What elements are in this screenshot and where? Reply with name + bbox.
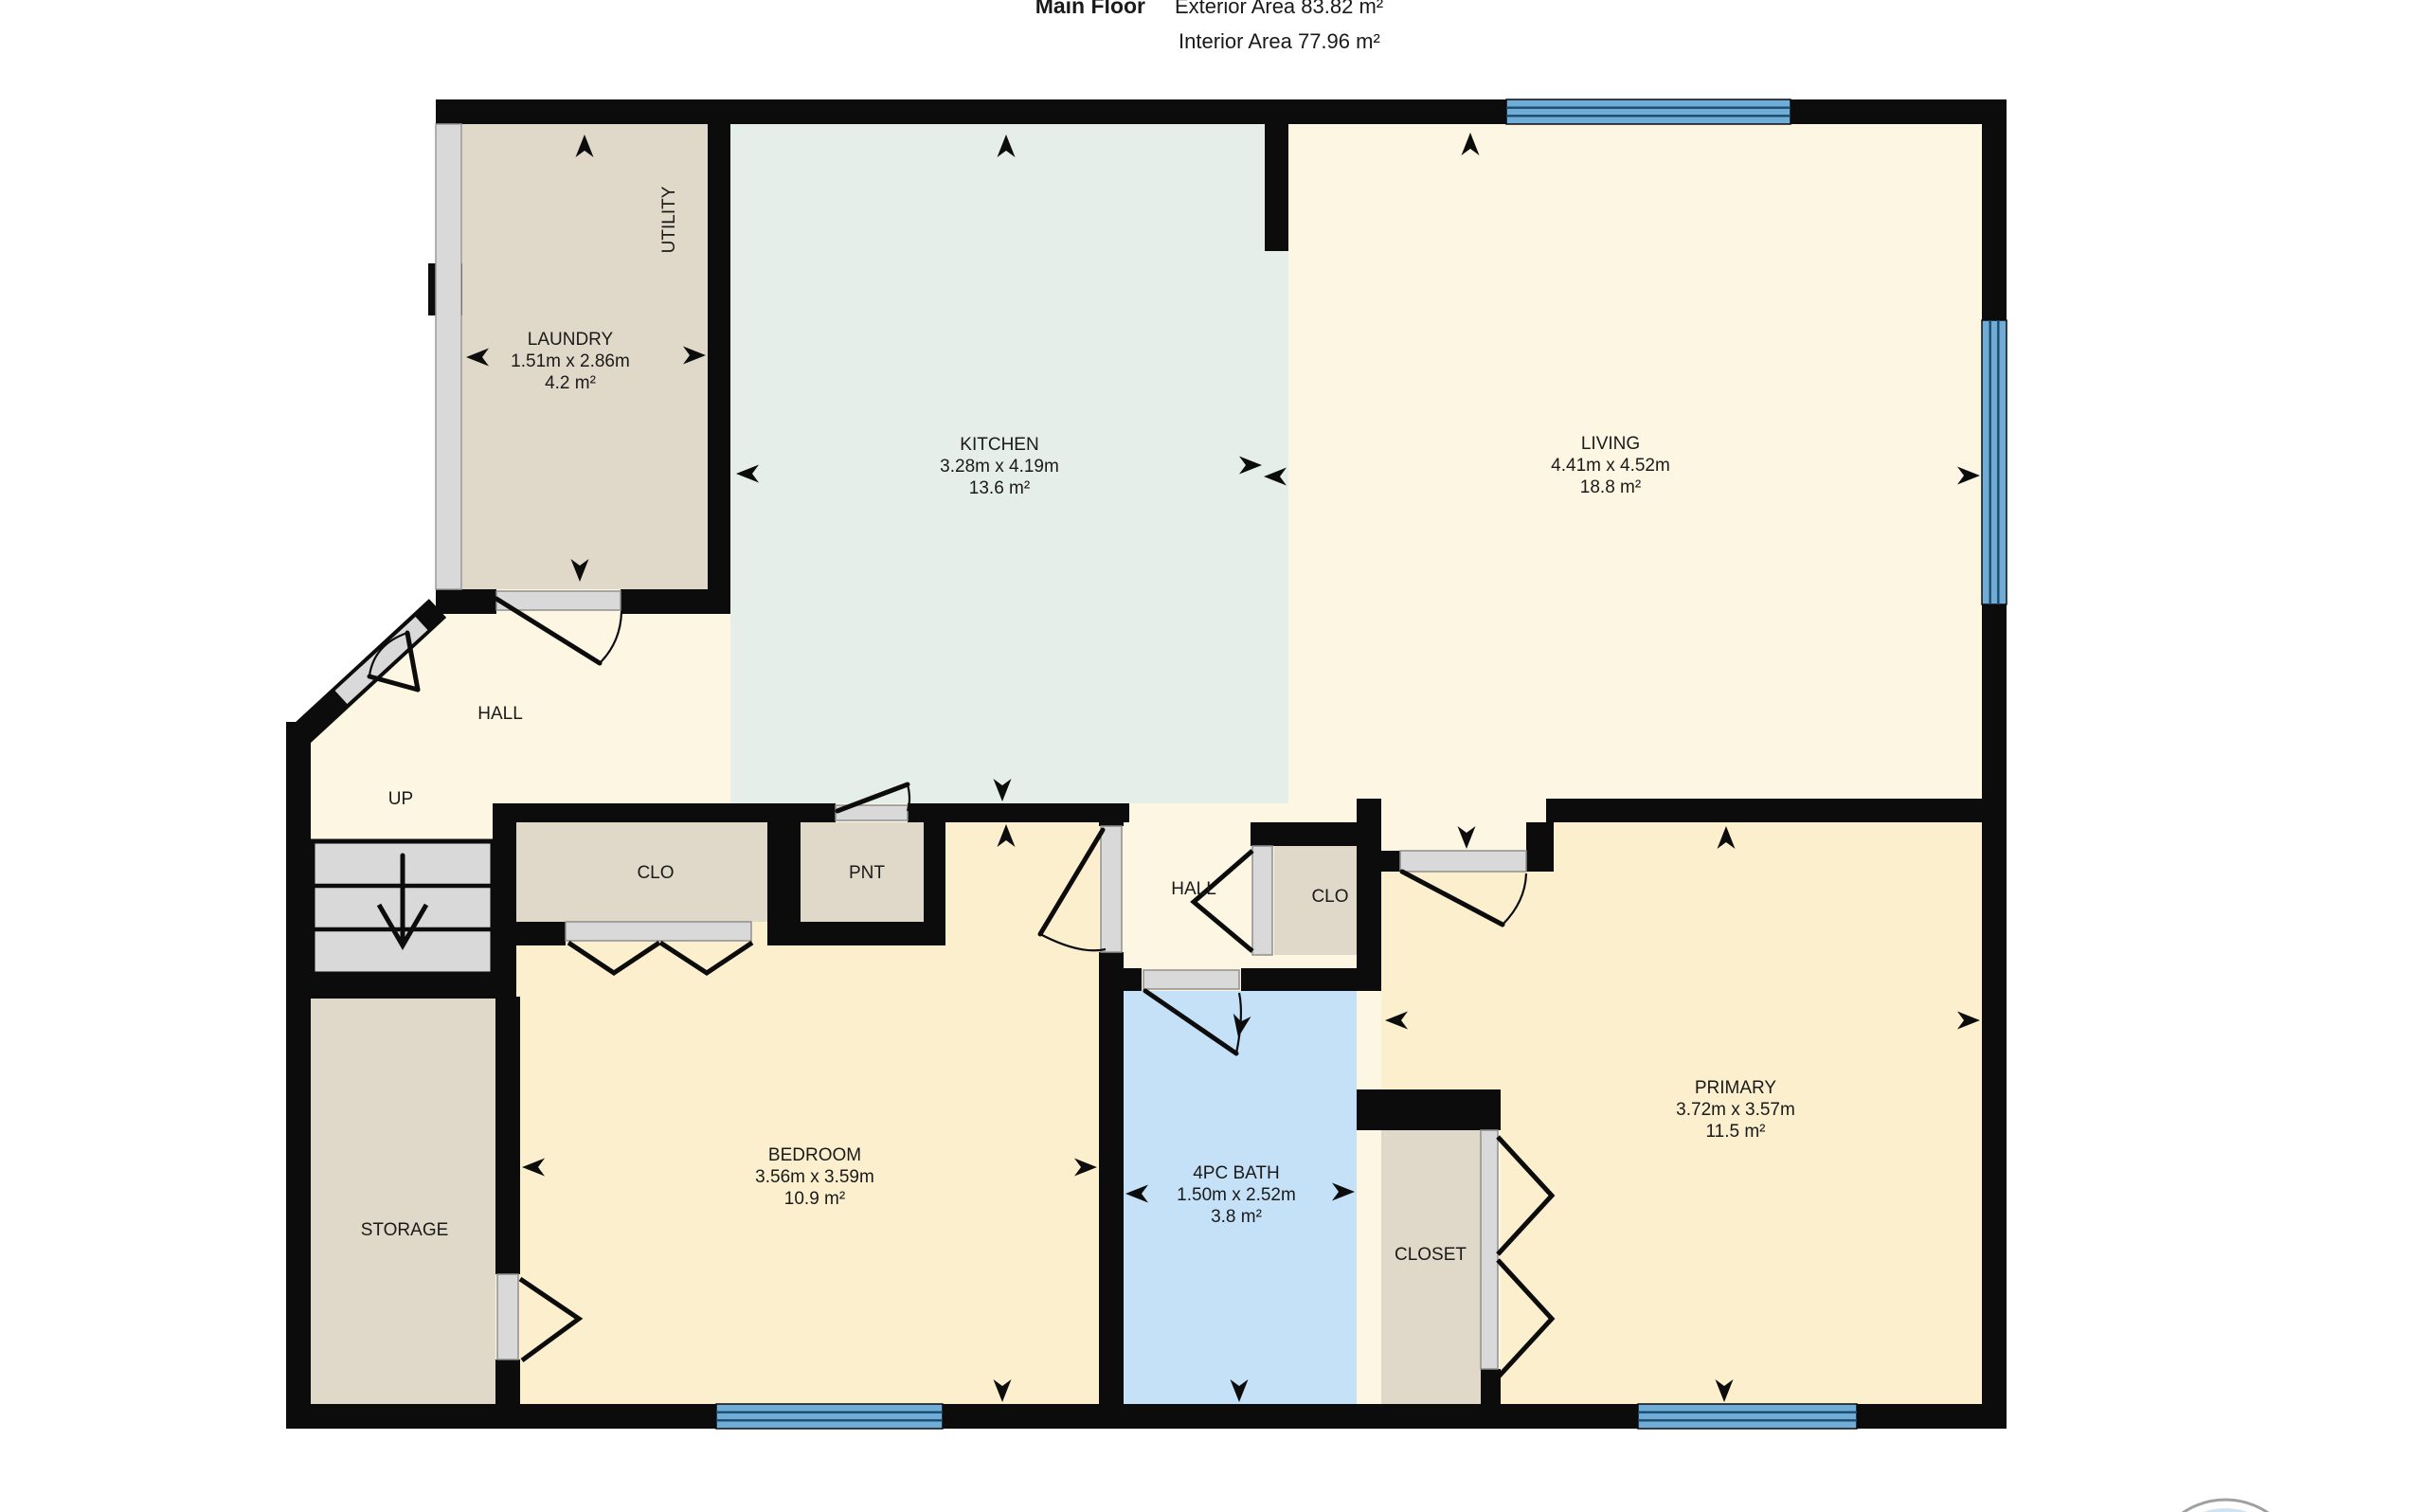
bath-area: 3.8 m²	[1211, 1207, 1262, 1227]
living-area: 18.8 m²	[1580, 477, 1641, 497]
utility-name: UTILITY	[659, 186, 679, 253]
laundry-west-gray-wall	[436, 124, 461, 589]
wall-bottom-a	[286, 1404, 716, 1429]
wall-kitchen-living-stub	[1265, 124, 1288, 251]
bath-door-opening	[1143, 970, 1239, 989]
kitchen-area: 13.6 m²	[969, 478, 1030, 498]
hall-bedroom-name: HALL	[1171, 879, 1216, 899]
storage-fill	[311, 999, 495, 1404]
exterior-area-label: Exterior Area 83.82 m²	[1175, 0, 1383, 18]
hall-closet-door-opening	[1252, 846, 1272, 955]
bedroom-name: BEDROOM	[768, 1145, 861, 1165]
primary-closet-name: CLOSET	[1395, 1245, 1467, 1265]
wall-top-left	[436, 99, 1506, 124]
wall-right-upper	[1982, 99, 2007, 320]
kitchen-dims: 3.28m x 4.19m	[940, 457, 1059, 477]
living-dims: 4.41m x 4.52m	[1551, 456, 1670, 476]
wall-clo-stub-left	[516, 922, 566, 945]
compass-logo-inner	[2158, 1508, 2293, 1512]
wall-notch-stub	[1381, 851, 1400, 872]
laundry-door-opening	[496, 591, 621, 610]
logo	[2150, 1500, 2301, 1512]
wall-laundry-bottom-right	[621, 589, 730, 614]
wall-living-bottom	[1546, 799, 1982, 822]
bedroom-door-opening	[1101, 826, 1122, 952]
wall-top-right	[1791, 99, 2007, 124]
stairs-up-label: UP	[388, 789, 413, 809]
hall-main-name: HALL	[477, 704, 523, 724]
bedroom-closet-name: CLO	[637, 863, 674, 883]
wall-pnt-right	[924, 803, 945, 945]
bedroom-closet-door-opening	[566, 922, 751, 941]
wall-bottom-c	[1857, 1404, 2007, 1429]
bath-dims: 1.50m x 2.52m	[1177, 1185, 1296, 1205]
wall-under-stairs	[286, 974, 516, 999]
primary-dims: 3.72m x 3.57m	[1676, 1100, 1795, 1120]
wall-primary-closet-top	[1357, 1089, 1501, 1130]
primary-name: PRIMARY	[1695, 1078, 1777, 1098]
wall-right-lower	[1982, 604, 2007, 1429]
room-fills	[280, 90, 1994, 1416]
storage-name: STORAGE	[361, 1220, 449, 1240]
wall-notch-corner	[1526, 822, 1554, 872]
wall-storage-right-lower	[495, 1359, 520, 1404]
bath-name: 4PC BATH	[1193, 1163, 1280, 1183]
bedroom-area: 10.9 m²	[784, 1189, 845, 1209]
storage-door-opening	[497, 1274, 518, 1359]
wall-laundry-bottom-left	[436, 589, 496, 614]
pantry-name: PNT	[849, 863, 885, 883]
window-primary	[1638, 1404, 1857, 1429]
interior-area-label: Interior Area 77.96 m²	[1179, 29, 1380, 53]
window-bedroom	[716, 1404, 943, 1429]
floor-title: Main Floor	[1035, 0, 1145, 18]
primary-door-opening	[1400, 851, 1526, 872]
wall-stairs-bedroom	[493, 803, 516, 997]
wall-laundry-kitchen	[708, 124, 730, 589]
wall-storage-right-upper	[495, 997, 520, 1274]
wall-bedroom-bath-lower	[1099, 952, 1124, 1404]
primary-closet-fill	[1381, 1130, 1481, 1404]
living-name: LIVING	[1581, 434, 1640, 454]
window-top	[1506, 99, 1791, 124]
laundry-area: 4.2 m²	[545, 373, 596, 393]
wall-bedroom-bath-upper	[1099, 803, 1124, 826]
bedroom-dims: 3.56m x 3.59m	[755, 1167, 874, 1187]
wall-notch-left	[1357, 799, 1381, 978]
stairs	[313, 841, 493, 974]
laundry-dims: 1.51m x 2.86m	[511, 351, 630, 371]
primary-area: 11.5 m²	[1705, 1122, 1765, 1142]
wall-bottom-b	[943, 1404, 1638, 1429]
primary-closet-door-opening	[1481, 1130, 1498, 1369]
kitchen-name: KITCHEN	[960, 435, 1038, 455]
wall-pnt-bottom	[777, 922, 945, 945]
floor-plan: Main Floor Exterior Area 83.82 m² Interi…	[0, 0, 2412, 1512]
laundry-name: LAUNDRY	[528, 330, 614, 350]
hall-closet-name: CLO	[1311, 887, 1348, 907]
wall-left	[286, 722, 311, 1429]
wall-bath-top-left	[1099, 968, 1142, 991]
window-right	[1982, 320, 2007, 604]
